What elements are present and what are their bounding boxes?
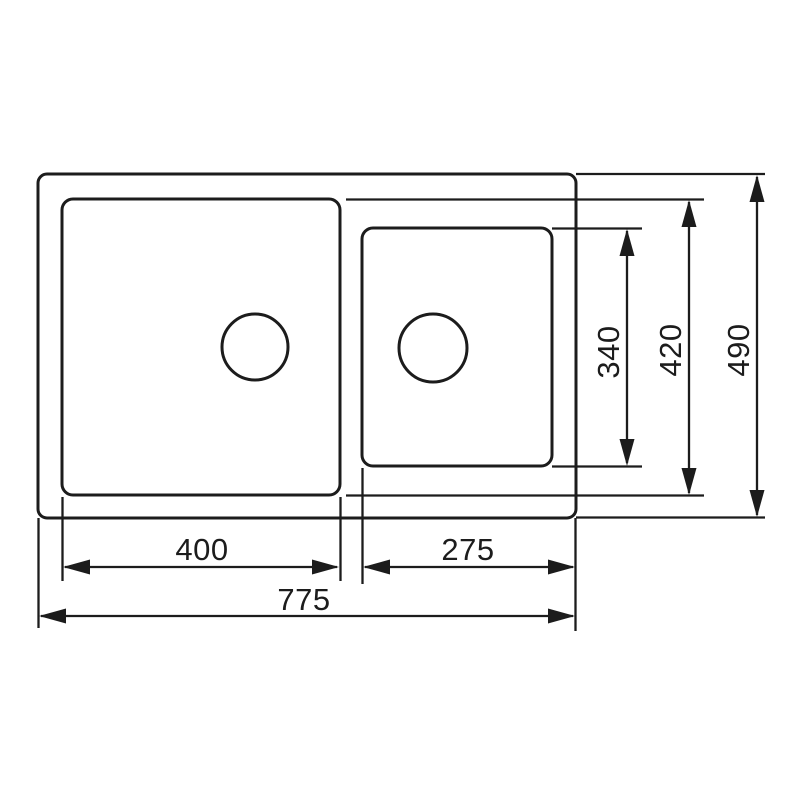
dim-400-label: 400	[175, 532, 228, 567]
drawing-background	[0, 0, 800, 800]
dim-420-label: 420	[653, 323, 688, 376]
sink-dimension-drawing: 340 420 490 400 275	[0, 0, 800, 800]
drawing-canvas: 340 420 490 400 275	[0, 0, 800, 800]
dim-340-label: 340	[591, 325, 626, 378]
dim-775-label: 775	[277, 582, 330, 617]
dim-275-label: 275	[441, 532, 494, 567]
dim-490-label: 490	[721, 323, 756, 376]
